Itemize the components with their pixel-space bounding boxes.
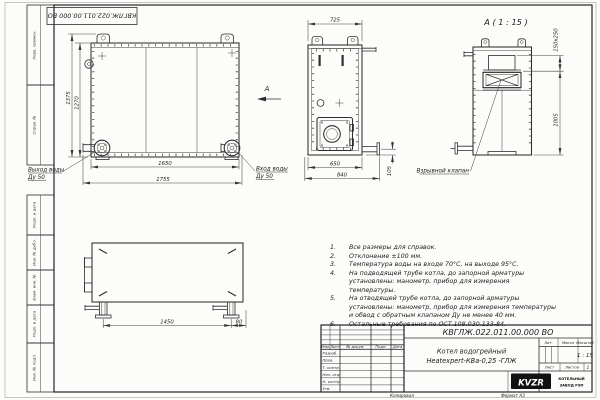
explosion-valve — [483, 56, 521, 91]
slot — [319, 55, 321, 66]
technical-notes: 1.Все размеры для справок. 2.Отклонение … — [328, 244, 556, 329]
margin-cell: Подп. и дата — [27, 195, 54, 235]
center-mark — [336, 99, 344, 107]
dim-plan-legs-span: 1450 — [160, 320, 174, 326]
org-name-line2: ЗАВОД РЭП — [560, 384, 584, 388]
tb-sheet-label: Лист — [544, 366, 555, 370]
tb-sheets-value: 1 — [587, 365, 590, 370]
tb-col-list: Лист — [329, 345, 340, 349]
note-item: 1.Все размеры для справок. — [328, 244, 556, 253]
tb-col-data: Дата — [392, 345, 403, 349]
corner-doc-number: КВГЛЖ.022.011.00.000 ВО — [47, 8, 137, 25]
side-bracket — [85, 60, 93, 68]
dim-front-height-total: 1375 — [66, 91, 72, 105]
outlet-flange — [83, 140, 110, 156]
detail-view-a: А ( 1 : 15 ) Взрывной клапан — [416, 17, 563, 175]
margin-stamp-label: Справ. № — [31, 116, 36, 135]
foot — [225, 157, 238, 160]
note-item: 5.На отводящей трубе котла, до запорной … — [328, 295, 556, 321]
side-dim-bottom: 650 840 — [305, 156, 380, 181]
tb-row-utv: Утв. — [323, 386, 331, 391]
side-view: 725 — [305, 18, 396, 182]
valve-callout: Взрывной клапан — [416, 80, 501, 175]
note-item: 6.Остальные требования по ОСТ 108.030.13… — [328, 321, 556, 330]
corner-marks — [99, 249, 236, 296]
note-text: На отводящей трубе котла, до запорной ар… — [349, 295, 556, 321]
tb-scale-label: Масштаб — [576, 341, 594, 345]
support-leg — [85, 302, 111, 318]
side-dim-top: 725 — [308, 18, 362, 42]
detail-pipe — [451, 143, 474, 154]
tb-col-izm: Изм. — [321, 345, 330, 349]
view-arrow-label: А — [264, 85, 270, 93]
note-text: Остальные требования по ОСТ 108.030.133-… — [349, 321, 556, 330]
dim-front-height-body: 1270 — [74, 96, 80, 110]
dim-side-top: 725 — [330, 18, 341, 24]
center-mark — [98, 49, 236, 60]
dim-plan-offset: 80 — [236, 320, 243, 326]
margin-stamp-label: Подп. и дата — [31, 201, 36, 228]
front-view: 1375 1270 1650 1755 Выход воды Ду 50 Вхо… — [27, 34, 288, 185]
drawing-canvas: Перв. примен. Справ. № Подп. и дата Инв.… — [0, 0, 600, 400]
note-number: 4. — [328, 270, 349, 296]
margin-cell: Взам. инв. № — [27, 270, 54, 305]
tb-row-nkontr: Н. контр. — [323, 379, 341, 384]
tb-mass-label: Масса — [562, 341, 574, 345]
note-text: Отклонение ±100 мм. — [349, 253, 556, 262]
corner-doc-number-text: КВГЛЖ.022.011.00.000 ВО — [48, 11, 136, 19]
outlet-label-line2: Ду 50 — [27, 175, 45, 181]
dim-front-width-body: 1650 — [158, 161, 172, 167]
dim-detail-height: 1005 — [554, 113, 560, 127]
tb-col-docnum: № докум. — [345, 345, 364, 349]
left-bracket — [85, 257, 93, 292]
dim-side-bottom-inner: 650 — [330, 162, 341, 168]
margin-stamp-label: Инв. № дубл. — [31, 239, 36, 266]
note-number: 1. — [328, 244, 349, 253]
view-arrow-head — [257, 97, 266, 102]
valve-callout-label: Взрывной клапан — [416, 169, 469, 175]
tb-row-tkontr: Т. контр. — [323, 365, 341, 370]
dim-valve-size: 150х250 — [554, 28, 560, 52]
margin-cell: Справ. № — [27, 85, 54, 165]
dim-side-pipe-height: 105 — [387, 165, 393, 176]
drawing-sheet: Перв. примен. Справ. № Подп. и дата Инв.… — [0, 0, 600, 400]
side-pipe — [362, 143, 380, 155]
detail-view-title: А ( 1 : 15 ) — [483, 17, 527, 27]
dim-front-width-total: 1755 — [156, 177, 170, 183]
note-number: 2. — [328, 253, 349, 262]
margin-stamp-label: Взам. инв. № — [31, 274, 36, 300]
tb-row-razrab: Разраб. — [323, 351, 338, 356]
lifting-lug — [97, 34, 234, 43]
margin-stamp-label: Перв. примен. — [31, 30, 36, 59]
tb-row-nachotd: Нач. отд. — [323, 372, 341, 377]
burner-plate — [317, 118, 354, 151]
tb-sheets-label: Листов — [564, 366, 579, 370]
margin-stamp-label: Подп. и дата — [31, 310, 36, 337]
note-text: Температура воды на входе 70°С, на выход… — [349, 261, 556, 270]
margin-cell: Инв. № подл. — [27, 343, 54, 392]
note-item: 2.Отклонение ±100 мм. — [328, 253, 556, 262]
note-item: 3.Температура воды на входе 70°С, на вых… — [328, 261, 556, 270]
note-item: 4.На подводящей трубе котла, до запорной… — [328, 270, 556, 296]
margin-cell: Подп. и дата — [27, 305, 54, 343]
lug-plate-edge — [362, 47, 376, 52]
company-logo-text: KVZR — [518, 379, 544, 389]
note-number: 6. — [328, 321, 349, 330]
inlet-label-line2: Ду 50 — [255, 174, 273, 180]
margin-column: Перв. примен. Справ. № Подп. и дата Инв.… — [27, 5, 54, 392]
copied-label: Копировал — [390, 393, 414, 398]
foot — [96, 157, 109, 160]
note-text: На подводящей трубе котла, до запорной а… — [349, 270, 556, 296]
view-arrow-a: А — [257, 85, 281, 101]
margin-cell: Инв. № дубл. — [27, 235, 54, 270]
slot — [342, 55, 344, 66]
lifting-lug — [482, 39, 526, 47]
note-text: Все размеры для справок. — [349, 244, 556, 253]
margin-stamp-label: Инв. № подл. — [31, 354, 36, 381]
tb-doc-number: КВГЛЖ.022.011.00.000 ВО — [443, 328, 554, 337]
inlet-callout: Вход воды Ду 50 — [238, 152, 288, 180]
org-name-line1: КОТЕЛЬНЫЙ — [558, 376, 584, 381]
tb-row-prov: Пров. — [323, 358, 334, 363]
tb-lit-label: Лит. — [543, 341, 553, 345]
boiler-plan-outline — [92, 243, 243, 302]
tb-product-name-line2: Heatexpert-КВа-0,25 -ГЛЖ — [426, 357, 517, 365]
company-logo: KVZR КОТЕЛЬНЫЙ ЗАВОД РЭП — [511, 374, 585, 390]
tb-product-name-line1: Котел водогрейный — [437, 348, 507, 356]
support-leg — [213, 302, 239, 318]
tb-scale-value: 1 : 15 — [577, 353, 594, 359]
outlet-callout: Выход воды Ду 50 — [27, 152, 95, 181]
inlet-label-line1: Вход воды — [256, 167, 288, 173]
outlet-label-line1: Выход воды — [28, 168, 65, 174]
plan-view: 1450 80 — [85, 243, 247, 328]
note-number: 5. — [328, 295, 349, 321]
top-stub — [464, 51, 473, 57]
tb-col-podp: Подп. — [375, 345, 386, 349]
inlet-flange — [221, 140, 240, 156]
dim-side-bottom-outer: 840 — [337, 173, 348, 179]
lifting-lug — [312, 37, 358, 46]
boiler-front-outline — [91, 43, 239, 157]
fitting-port — [317, 100, 324, 107]
plan-dims: 1450 80 — [103, 310, 246, 328]
title-block: Изм. Лист № докум. Подп. Дата Разраб. Пр… — [321, 325, 594, 398]
format-label: Формат А3 — [501, 393, 525, 398]
note-number: 3. — [328, 261, 349, 270]
